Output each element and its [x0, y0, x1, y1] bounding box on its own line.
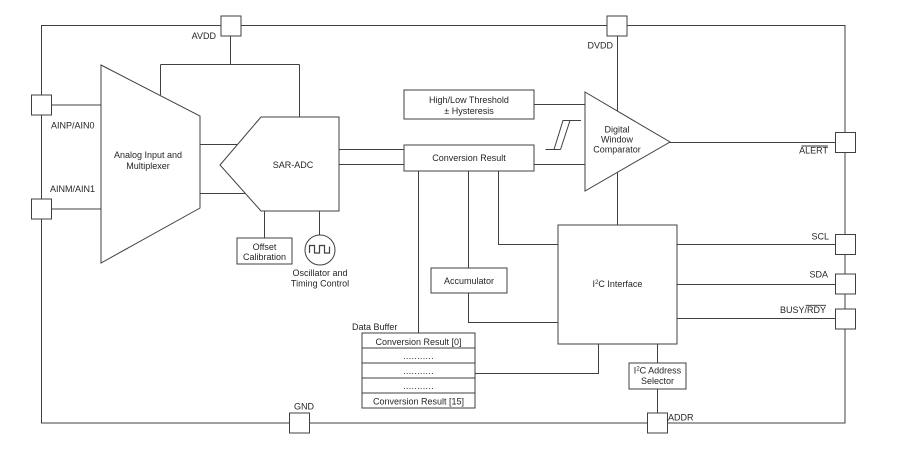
- svg-text:Analog Input and: Analog Input and: [114, 150, 182, 160]
- svg-text:SCL: SCL: [811, 232, 829, 242]
- svg-text:Conversion Result [15]: Conversion Result [15]: [373, 397, 464, 407]
- svg-text:Conversion Result [0]: Conversion Result [0]: [375, 337, 461, 347]
- svg-text:Digital: Digital: [604, 125, 629, 135]
- svg-text:± Hysteresis: ± Hysteresis: [444, 106, 494, 116]
- svg-text:Timing Control: Timing Control: [291, 279, 349, 289]
- svg-text:...........: ...........: [403, 381, 434, 391]
- svg-text:ADDR: ADDR: [668, 413, 694, 423]
- svg-text:Comparator: Comparator: [593, 145, 641, 155]
- svg-text:Selector: Selector: [641, 376, 674, 386]
- svg-text:I2C Address: I2C Address: [634, 366, 682, 376]
- svg-text:Data Buffer: Data Buffer: [352, 322, 397, 332]
- svg-text:AINM/AIN1: AINM/AIN1: [50, 184, 95, 194]
- svg-text:AVDD: AVDD: [192, 31, 217, 41]
- svg-text:SDA: SDA: [809, 270, 828, 280]
- svg-text:...........: ...........: [403, 366, 434, 376]
- svg-text:BUSY/RDY: BUSY/RDY: [780, 305, 826, 315]
- svg-text:SAR-ADC: SAR-ADC: [273, 160, 314, 170]
- svg-text:Accumulator: Accumulator: [444, 276, 494, 286]
- svg-text:...........: ...........: [403, 351, 434, 361]
- svg-text:Calibration: Calibration: [243, 252, 286, 262]
- svg-text:Offset: Offset: [253, 242, 277, 252]
- svg-text:ALERT: ALERT: [799, 146, 828, 156]
- svg-text:AINP/AIN0: AINP/AIN0: [51, 121, 95, 131]
- svg-text:Window: Window: [601, 135, 634, 145]
- svg-text:Conversion Result: Conversion Result: [432, 153, 506, 163]
- svg-text:Multiplexer: Multiplexer: [126, 161, 170, 171]
- svg-text:GND: GND: [294, 402, 315, 412]
- svg-text:DVDD: DVDD: [587, 41, 613, 51]
- svg-text:I2C Interface: I2C Interface: [593, 279, 643, 289]
- svg-text:High/Low Threshold: High/Low Threshold: [429, 95, 509, 105]
- svg-text:Oscillator and: Oscillator and: [292, 268, 347, 278]
